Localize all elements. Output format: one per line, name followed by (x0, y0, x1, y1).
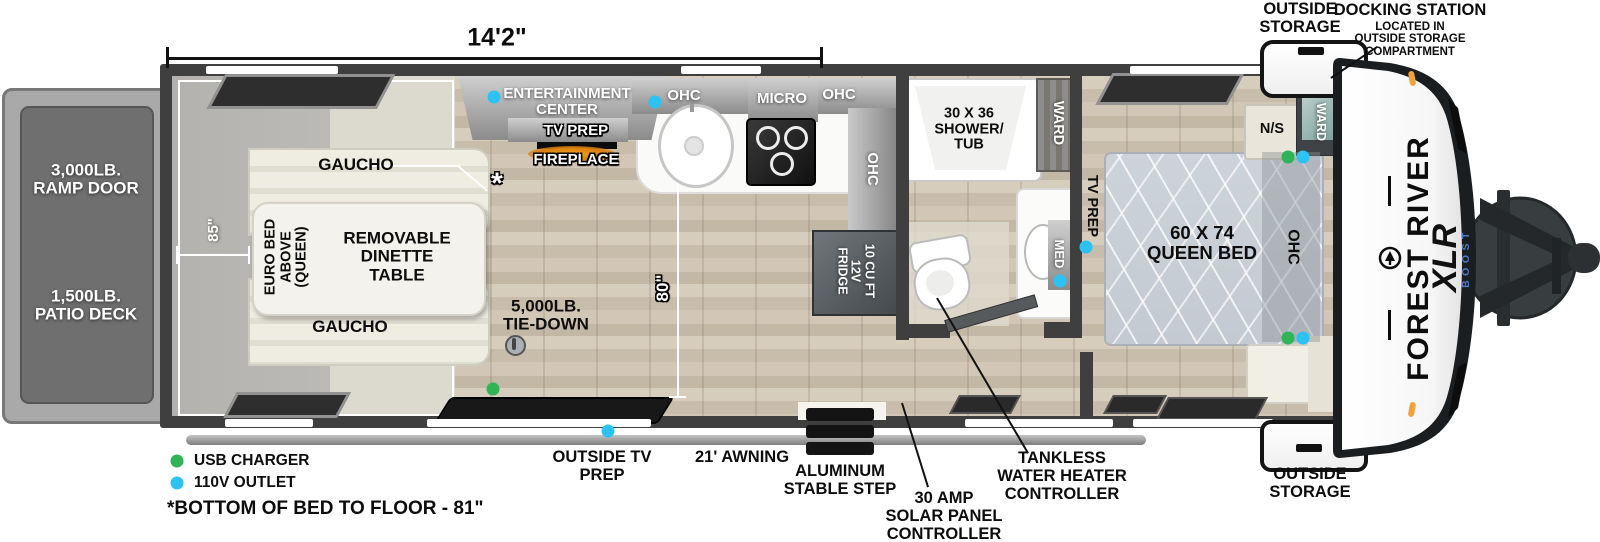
garage-roof-vent-2 (223, 392, 351, 418)
patio-deck-label: 1,500LB. PATIO DECK (35, 288, 137, 325)
outside-tv-prep-label: OUTSIDE TV PREP (552, 449, 651, 485)
outside-storage-bottom-label: OUTSIDE STORAGE (1269, 466, 1350, 502)
outside-storage-top-handle (1298, 47, 1324, 55)
tankless-controller-label: TANKLESS WATER HEATER CONTROLLER (997, 450, 1127, 503)
outlet-tvprep-wall (1080, 241, 1093, 254)
fireplace-label: FIREPLACE (533, 152, 618, 168)
garage-roof-vent (207, 74, 396, 109)
legend-outlet-label: 110V OUTLET (194, 475, 296, 492)
legend-usb-dot (171, 455, 184, 468)
microwave-label: MICRO (757, 91, 807, 107)
asterisk-mark: * (491, 168, 503, 200)
legend-outlet-dot (171, 477, 184, 490)
length-dimension-line (168, 57, 822, 60)
bedroom-mat (1156, 397, 1268, 420)
window-bottom-1 (225, 419, 313, 427)
length-dim-tick-left (166, 47, 169, 68)
dinette-table-label: REMOVABLE DINETTE TABLE (343, 229, 450, 284)
bedroom-roof-vent (1095, 73, 1244, 105)
usb-bed-bottom (1282, 332, 1295, 345)
outlet-kitchen (649, 96, 662, 109)
kitchen-sink-drain (684, 136, 704, 156)
garage-dim-tick-l (176, 246, 178, 264)
burner-2 (784, 126, 808, 150)
bath-wall-bottom-left (896, 324, 950, 338)
brand-dash-top (1388, 176, 1391, 206)
kitchen-ohc-side-label: OHC (864, 152, 880, 185)
outside-storage-bottom-handle (1296, 444, 1322, 452)
ramp-door (20, 106, 154, 404)
brand-dash-bottom (1388, 310, 1391, 340)
front-cap-and-hitch: FOREST RIVER XLR BOOST (1330, 0, 1600, 542)
living-dim-label: 80" (654, 275, 672, 302)
bedroom-hall-wall (1080, 352, 1093, 416)
docking-station-title: DOCKING STATION (1334, 2, 1486, 20)
outlet-bed-bottom (1297, 332, 1310, 345)
gaucho-bottom-label: GAUCHO (312, 318, 388, 336)
window-top-3 (1130, 66, 1262, 74)
usb-bed-top (1282, 151, 1295, 164)
tie-down-label: 5,000LB. TIE-DOWN (503, 298, 589, 335)
bed-ohc-label: OHC (1284, 229, 1301, 265)
living-dim-line (677, 178, 679, 398)
usb-garage (487, 383, 500, 396)
xlr-logo: XLR (1426, 224, 1464, 294)
window-top-1 (206, 66, 338, 74)
gaucho-top-label: GAUCHO (318, 156, 394, 174)
living-tv-prep-label: TV PREP (544, 123, 608, 139)
bed-height-footnote: *BOTTOM OF BED TO FLOOR - 81" (167, 499, 484, 520)
length-dimension-label: 14'2" (467, 25, 527, 52)
outlet-vanity (1054, 275, 1067, 288)
nightstand-label: N/S (1260, 122, 1284, 138)
entry-step-3 (806, 442, 874, 455)
shower-label: 30 X 36 SHOWER/ TUB (934, 107, 1003, 154)
bath-wall-left (896, 76, 909, 340)
length-dim-tick-right (820, 47, 823, 68)
euro-bed-label: EURO BED ABOVE (QUEEN) (264, 219, 311, 296)
bath-wall-bottom-right (1044, 322, 1082, 338)
garage-dim-tick-r (248, 246, 250, 264)
bedroom-tv-prep-label: TV PREP (1083, 175, 1099, 237)
burner-1 (756, 126, 780, 150)
garage-dim-label: 85" (206, 218, 222, 242)
front-cap: FOREST RIVER XLR BOOST (1333, 58, 1476, 458)
bath-wardrobe-label: WARD (1049, 101, 1065, 145)
ramp-door-label: 3,000LB. RAMP DOOR (33, 162, 138, 199)
awning-bar (186, 435, 1146, 445)
outlet-entertainment (488, 91, 501, 104)
outlet-bed-top (1297, 151, 1310, 164)
kitchen-ohc-right-label: OHC (822, 87, 855, 103)
kitchen-ohc-left-label: OHC (667, 88, 700, 104)
med-cabinet-label: MED (1052, 240, 1066, 269)
awning-label: 21' AWNING (695, 449, 789, 467)
entertainment-center-label: ENTERTAINMENT CENTER (503, 86, 630, 118)
window-bottom-2 (427, 419, 651, 427)
tie-down-anchor-slot (512, 338, 516, 350)
outside-storage-top-label: OUTSIDE STORAGE (1259, 1, 1340, 37)
hall-mat-1 (949, 395, 1021, 414)
solar-controller-label: 30 AMP SOLAR PANEL CONTROLLER (885, 490, 1002, 542)
living-dim-tick-bottom (669, 396, 686, 398)
stable-step-label: ALUMINUM STABLE STEP (784, 463, 896, 499)
entry-step-2 (806, 425, 874, 438)
bath-wall-right (1070, 76, 1082, 338)
hall-mat-2 (1103, 395, 1167, 414)
floorplan-diagram: 14'2" 3,000LB. RAMP DOOR 1,500LB. PATIO … (0, 0, 1600, 542)
bedroom-wardrobe-label: WARD (1313, 103, 1327, 141)
window-bottom-4 (1133, 419, 1273, 427)
window-top-2 (681, 66, 761, 74)
outlet-outside-tv (602, 425, 615, 438)
boost-logo: BOOST (1460, 228, 1472, 288)
hitch-assembly (1464, 190, 1600, 326)
queen-bed-label: 60 X 74 QUEEN BED (1147, 223, 1257, 263)
entry-step-1 (806, 408, 874, 421)
window-bottom-3 (965, 419, 1113, 427)
burner-3 (770, 152, 794, 176)
refrigerator-label: 10 CU FT 12V FRIDGE (835, 244, 876, 298)
legend-usb-label: USB CHARGER (194, 453, 309, 470)
garage-dim-line (176, 254, 250, 256)
docking-station-subtitle: LOCATED IN OUTSIDE STORAGE COMPARTMENT (1355, 21, 1466, 58)
